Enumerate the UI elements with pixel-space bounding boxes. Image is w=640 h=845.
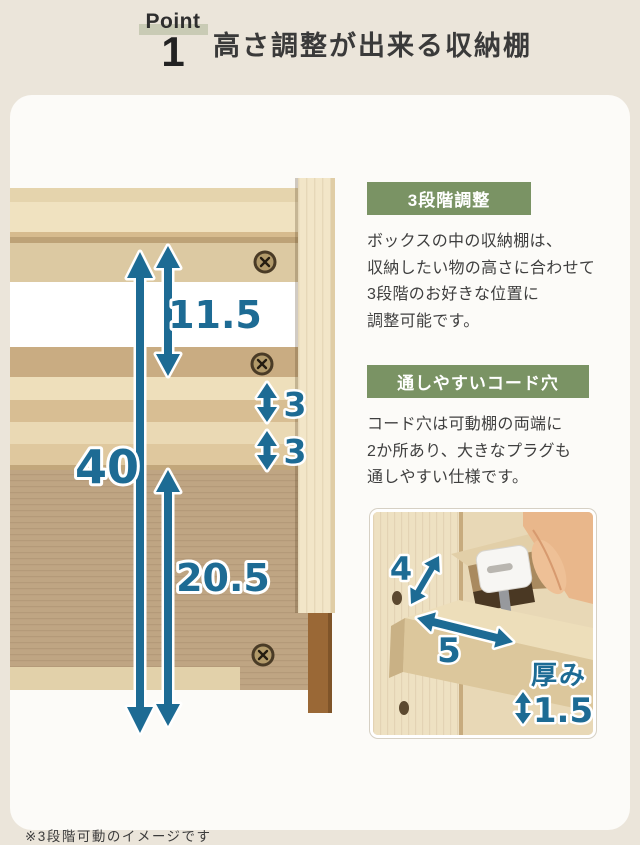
section-text-line: 通しやすい仕様です。 [367, 465, 603, 492]
point-label: Point [146, 10, 201, 34]
inset-label-thickness-title: 厚み [531, 661, 587, 691]
point-badge: Point 1 [140, 10, 206, 73]
screw-icon [252, 354, 272, 374]
section-text-line: ボックスの中の収納棚は、 [367, 229, 603, 256]
cord-hole-photo: 4 5 厚み 1.5 [370, 509, 596, 738]
inset-label-thickness-value: 1.5 [533, 691, 593, 731]
inset-label-hole-width: 5 [437, 631, 461, 671]
diagram-note: ※3段階可動のイメージです [25, 825, 212, 845]
point-label-text: Point [146, 10, 201, 33]
peg-hole [399, 701, 409, 715]
section-text-line: コード穴は可動棚の両端に [367, 412, 603, 439]
page-header: Point 1 高さ調整が出来る収納棚 [0, 0, 640, 95]
section-text-line: 収納したい物の高さに合わせて [367, 256, 603, 283]
shelf-diagram: 40 11.5 20.5 3 3 ※3段階可動のイメージです [10, 170, 335, 745]
measurement-label-pitch-top: 3 [284, 385, 307, 424]
section-text-line: 3段階のお好きな位置に [367, 282, 603, 309]
section-text-line: 2か所あり、大きなプラグも [367, 439, 603, 466]
section-text-adjust: ボックスの中の収納棚は、 収納したい物の高さに合わせて 3段階のお好きな位置に … [367, 229, 603, 335]
section-label-cord-hole: 通しやすいコード穴 [367, 365, 589, 398]
screw-icon [253, 645, 273, 665]
feature-column: 3段階調整 ボックスの中の収納棚は、 収納したい物の高さに合わせて 3段階のお好… [367, 182, 603, 738]
section-label-adjust: 3段階調整 [367, 182, 531, 215]
section-text-line: 調整可能です。 [367, 309, 603, 336]
shelf-photo-illustration: 40 11.5 20.5 3 3 [10, 170, 335, 745]
measurement-label-total: 40 [75, 440, 139, 494]
inset-label-hole-height: 4 [390, 550, 412, 588]
content-card: 40 11.5 20.5 3 3 ※3段階可動のイメージです 3段階調整 ボック… [10, 95, 630, 830]
measurement-label-upper: 11.5 [168, 293, 262, 337]
measurement-label-lower: 20.5 [176, 556, 270, 600]
measurement-label-pitch-bottom: 3 [284, 432, 307, 471]
screw-icon [255, 252, 275, 272]
peg-hole [392, 591, 402, 605]
point-number: 1 [140, 31, 206, 73]
page-title: 高さ調整が出来る収納棚 [213, 24, 532, 63]
section-text-cord-hole: コード穴は可動棚の両端に 2か所あり、大きなプラグも 通しやすい仕様です。 [367, 412, 603, 492]
